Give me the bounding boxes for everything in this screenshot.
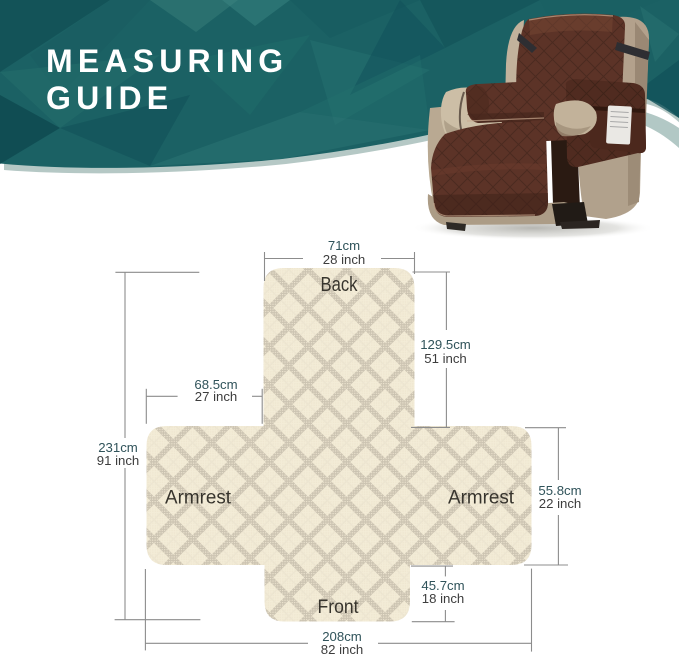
svg-text:91 inch: 91 inch bbox=[97, 453, 140, 468]
svg-text:129.5cm: 129.5cm bbox=[420, 337, 471, 352]
svg-text:51 inch: 51 inch bbox=[424, 351, 467, 366]
svg-text:27 inch: 27 inch bbox=[195, 389, 238, 404]
svg-text:MEASURING: MEASURING bbox=[46, 43, 288, 79]
svg-text:Back: Back bbox=[321, 274, 359, 296]
svg-text:22 inch: 22 inch bbox=[539, 496, 582, 511]
svg-text:82 inch: 82 inch bbox=[321, 642, 364, 655]
svg-text:Armrest: Armrest bbox=[448, 488, 515, 509]
svg-text:71cm: 71cm bbox=[328, 238, 360, 253]
svg-text:Armrest: Armrest bbox=[165, 488, 232, 509]
svg-text:Front: Front bbox=[318, 597, 360, 618]
svg-text:18 inch: 18 inch bbox=[422, 591, 465, 606]
svg-text:28 inch: 28 inch bbox=[323, 252, 366, 267]
svg-text:GUIDE: GUIDE bbox=[46, 80, 173, 116]
